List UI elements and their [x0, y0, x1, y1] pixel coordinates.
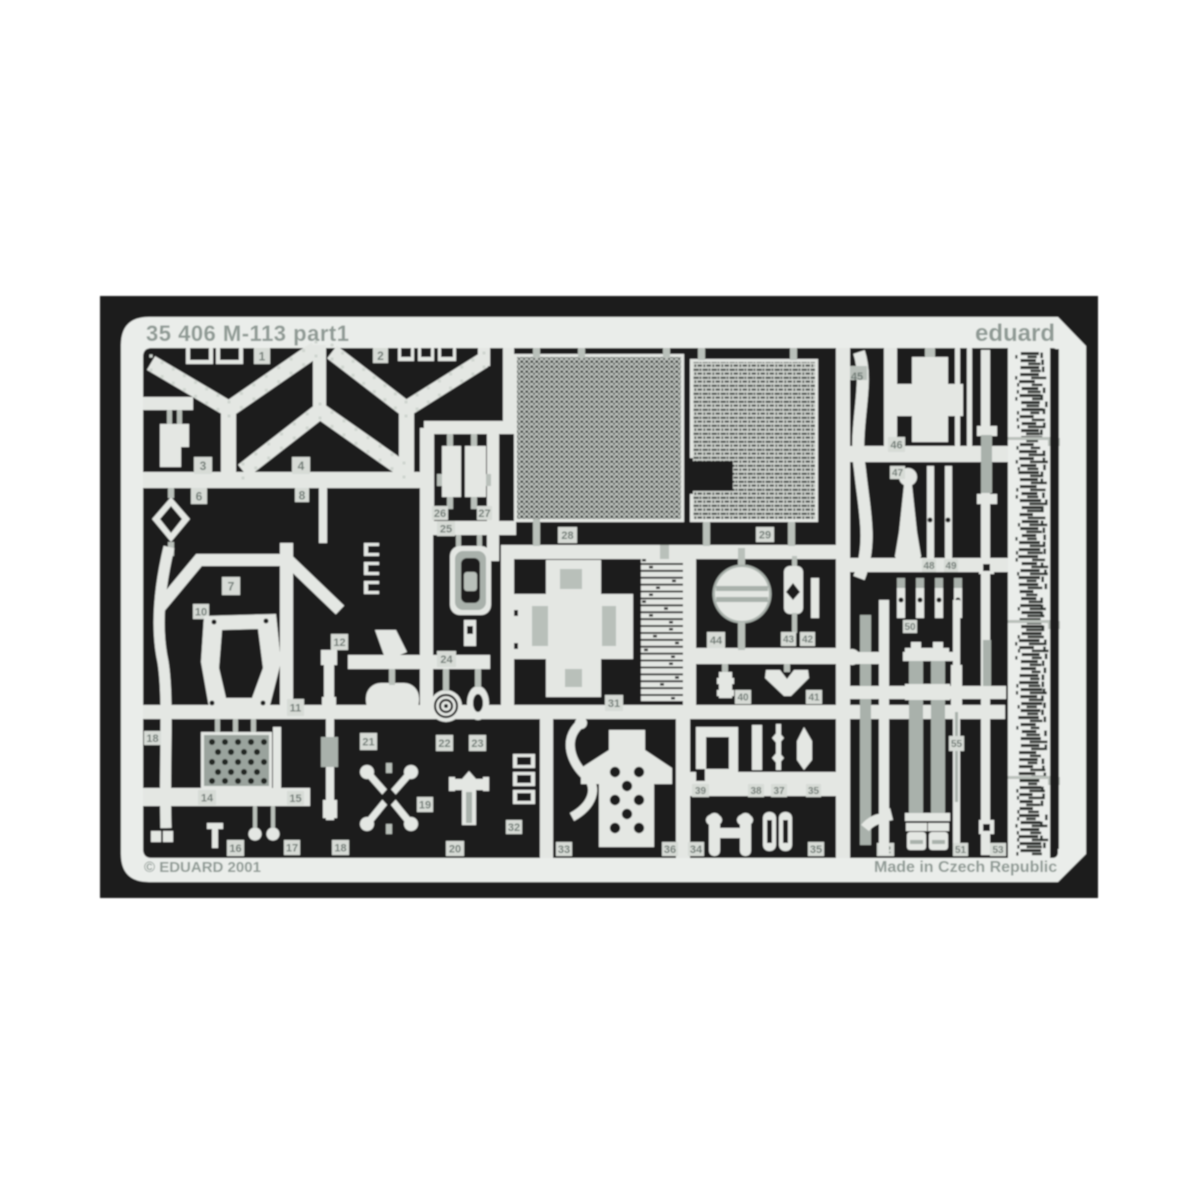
svg-text:18: 18	[334, 842, 346, 854]
svg-text:1: 1	[259, 349, 266, 363]
svg-text:© EDUARD 2001: © EDUARD 2001	[144, 859, 261, 876]
svg-text:7: 7	[228, 579, 235, 593]
svg-text:39: 39	[695, 786, 707, 797]
svg-text:2: 2	[377, 349, 384, 363]
svg-text:22: 22	[438, 738, 450, 750]
svg-text:49: 49	[945, 561, 957, 572]
svg-text:17: 17	[286, 842, 298, 854]
svg-text:34: 34	[690, 844, 703, 856]
svg-text:43: 43	[783, 635, 795, 646]
svg-text:36: 36	[664, 844, 676, 856]
svg-text:23: 23	[471, 738, 483, 750]
svg-text:19: 19	[419, 799, 431, 811]
svg-text:33: 33	[558, 844, 570, 856]
svg-text:20: 20	[449, 843, 461, 855]
svg-text:28: 28	[561, 530, 573, 542]
svg-text:25: 25	[440, 523, 452, 535]
svg-text:46: 46	[890, 439, 902, 451]
svg-text:12: 12	[333, 637, 345, 649]
svg-text:45: 45	[851, 371, 863, 383]
svg-text:47: 47	[892, 468, 904, 479]
svg-text:55: 55	[951, 739, 963, 750]
svg-text:53: 53	[992, 845, 1004, 856]
svg-text:37: 37	[773, 786, 785, 797]
svg-text:41: 41	[808, 693, 820, 704]
svg-text:50: 50	[904, 622, 916, 633]
svg-text:eduard: eduard	[975, 320, 1055, 347]
svg-text:6: 6	[196, 489, 203, 503]
svg-text:35: 35	[808, 786, 820, 797]
svg-text:Made in Czech Republic: Made in Czech Republic	[874, 859, 1057, 876]
svg-text:42: 42	[802, 635, 814, 646]
svg-text:38: 38	[750, 786, 762, 797]
svg-text:8: 8	[299, 488, 306, 502]
svg-text:35 406 M-113 part1: 35 406 M-113 part1	[146, 321, 349, 346]
svg-text:14: 14	[201, 792, 214, 804]
svg-text:31: 31	[608, 698, 620, 710]
svg-text:35: 35	[810, 844, 822, 856]
svg-text:29: 29	[759, 529, 771, 541]
svg-text:24: 24	[440, 654, 453, 666]
svg-text:40: 40	[737, 693, 749, 704]
svg-text:15: 15	[289, 793, 301, 805]
svg-text:44: 44	[710, 635, 723, 647]
svg-text:18: 18	[146, 733, 158, 745]
svg-text:26: 26	[434, 508, 446, 520]
svg-text:4: 4	[298, 459, 305, 473]
svg-text:3: 3	[200, 459, 207, 473]
svg-text:21: 21	[362, 736, 374, 748]
svg-text:48: 48	[923, 561, 935, 572]
svg-text:51: 51	[955, 845, 967, 856]
svg-text:27: 27	[478, 508, 490, 520]
svg-text:16: 16	[229, 843, 241, 855]
svg-text:11: 11	[290, 702, 302, 714]
svg-text:32: 32	[508, 822, 520, 834]
